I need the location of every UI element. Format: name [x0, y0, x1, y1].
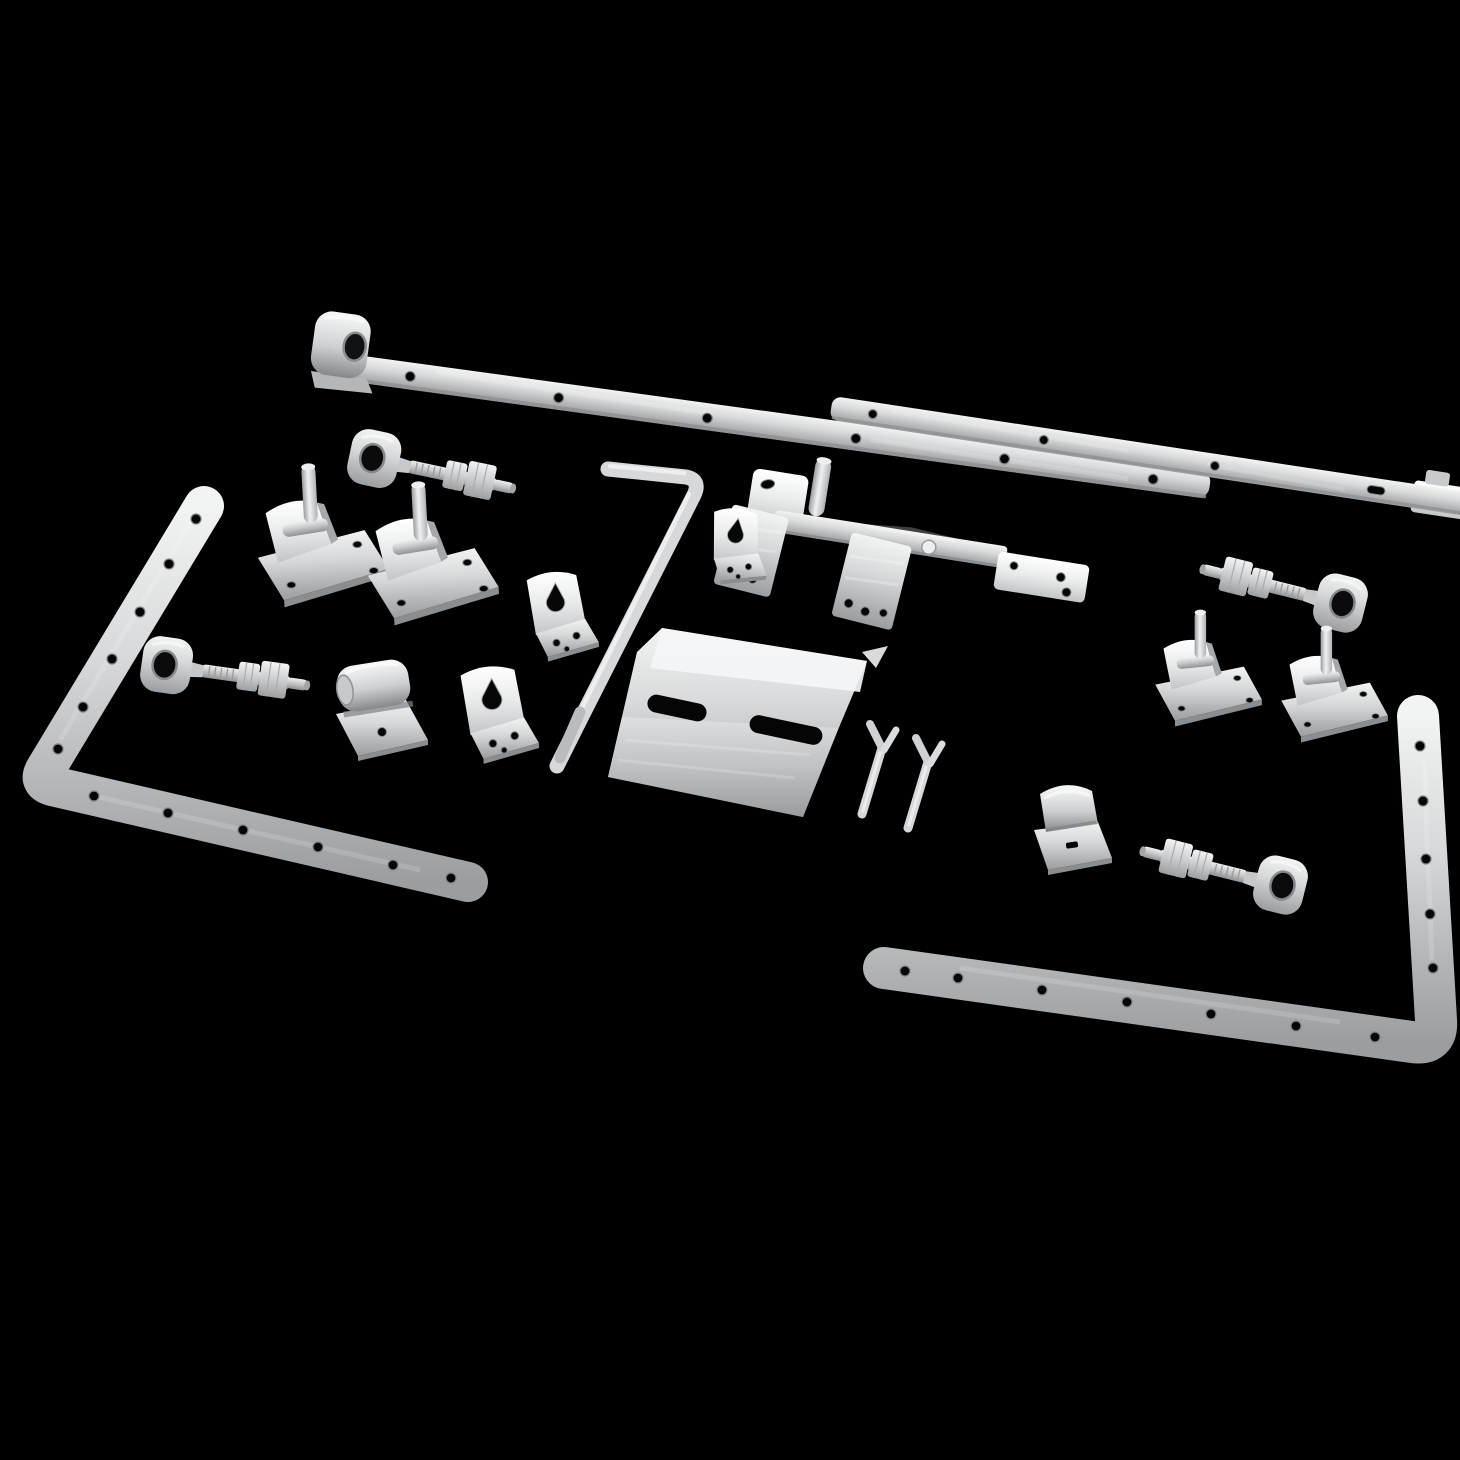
photo-canvas: [0, 0, 1460, 1460]
product-photo: [0, 0, 1460, 1460]
